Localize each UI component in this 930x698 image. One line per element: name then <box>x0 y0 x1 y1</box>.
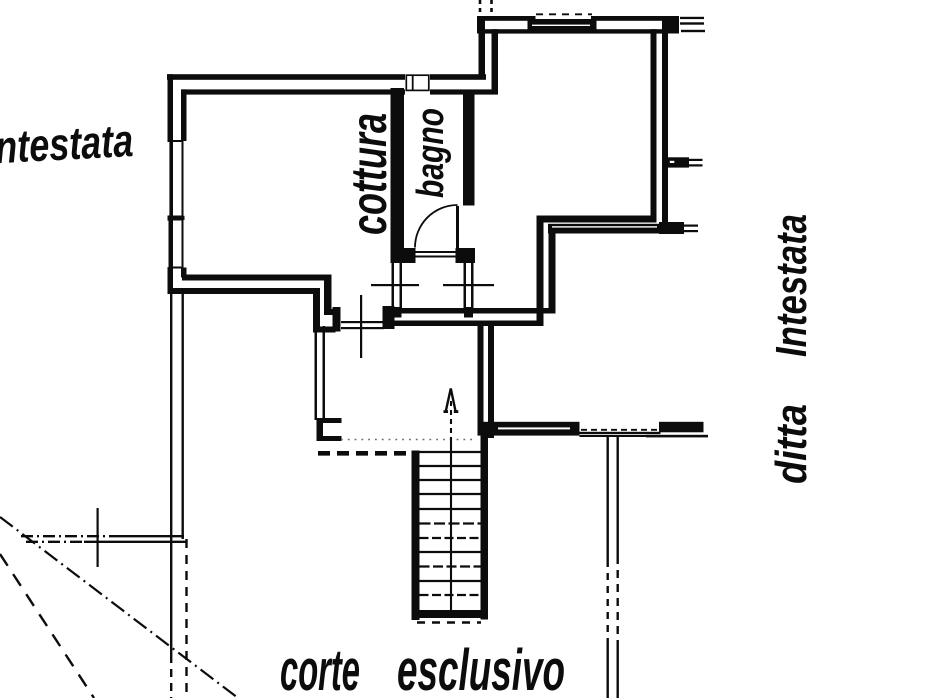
svg-text:cottura: cottura <box>341 113 397 235</box>
svg-text:ditta: ditta <box>767 404 816 484</box>
svg-text:bagno: bagno <box>410 108 452 198</box>
svg-text:Intestata: Intestata <box>767 214 816 357</box>
svg-text:esclusivo: esclusivo <box>397 638 565 698</box>
svg-text:corte: corte <box>280 638 360 698</box>
svg-text:ntestata: ntestata <box>0 114 134 173</box>
